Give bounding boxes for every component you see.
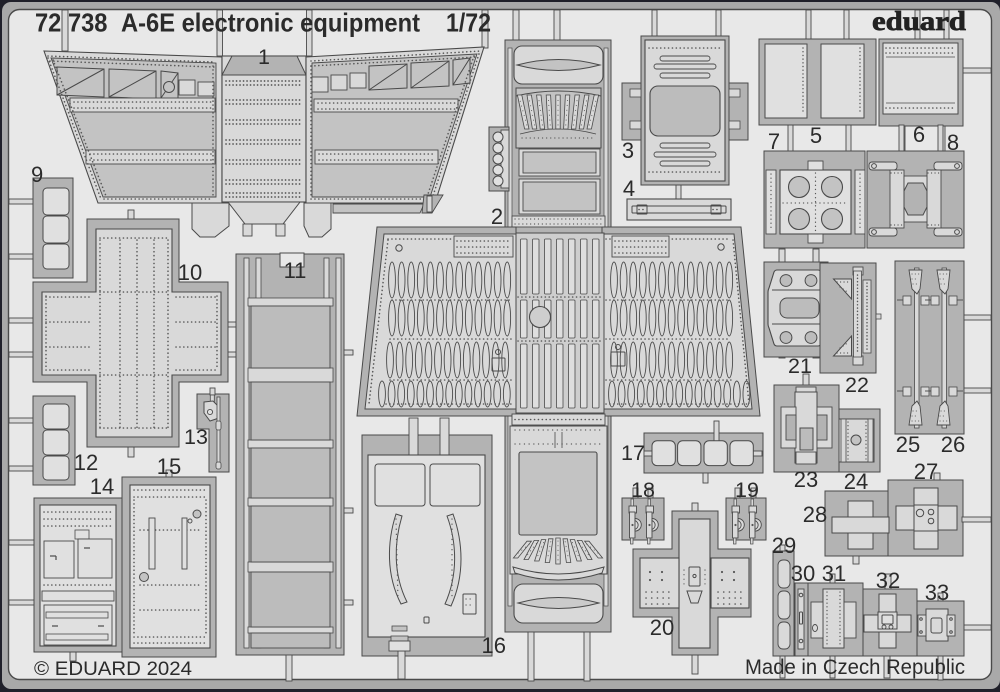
svg-text:10: 10	[178, 260, 202, 285]
svg-text:12: 12	[74, 450, 98, 475]
svg-text:4: 4	[623, 176, 635, 201]
svg-text:23: 23	[794, 467, 818, 492]
svg-text:3: 3	[622, 138, 634, 163]
svg-text:13: 13	[184, 425, 208, 449]
svg-text:A-6E electronic equipment: A-6E electronic equipment	[121, 8, 420, 38]
svg-text:29: 29	[772, 533, 796, 558]
svg-text:© EDUARD 2024: © EDUARD 2024	[34, 658, 192, 680]
svg-text:25: 25	[896, 432, 920, 457]
svg-text:30: 30	[791, 561, 815, 586]
svg-text:17: 17	[621, 441, 645, 465]
svg-text:1/72: 1/72	[446, 8, 491, 38]
svg-text:18: 18	[631, 478, 655, 502]
svg-text:16: 16	[482, 633, 506, 658]
svg-text:2: 2	[491, 204, 503, 229]
svg-text:24: 24	[844, 469, 868, 494]
svg-text:1: 1	[258, 45, 270, 69]
svg-text:33: 33	[925, 580, 949, 605]
svg-text:15: 15	[157, 454, 181, 479]
svg-text:6: 6	[913, 122, 925, 147]
svg-text:22: 22	[845, 373, 869, 397]
svg-text:11: 11	[284, 258, 307, 283]
svg-text:5: 5	[810, 123, 822, 148]
svg-text:14: 14	[90, 474, 114, 499]
svg-text:31: 31	[822, 561, 846, 586]
svg-text:27: 27	[914, 459, 938, 484]
svg-text:9: 9	[31, 162, 43, 187]
svg-text:8: 8	[947, 130, 959, 155]
svg-text:7: 7	[768, 129, 780, 154]
svg-text:28: 28	[803, 502, 827, 527]
svg-text:32: 32	[876, 568, 900, 593]
svg-text:eduard: eduard	[872, 6, 966, 36]
svg-text:72 738: 72 738	[35, 8, 108, 38]
svg-text:20: 20	[650, 615, 674, 640]
svg-text:19: 19	[735, 478, 759, 502]
svg-text:26: 26	[941, 432, 965, 457]
svg-text:Made in Czech Republic: Made in Czech Republic	[745, 656, 965, 679]
